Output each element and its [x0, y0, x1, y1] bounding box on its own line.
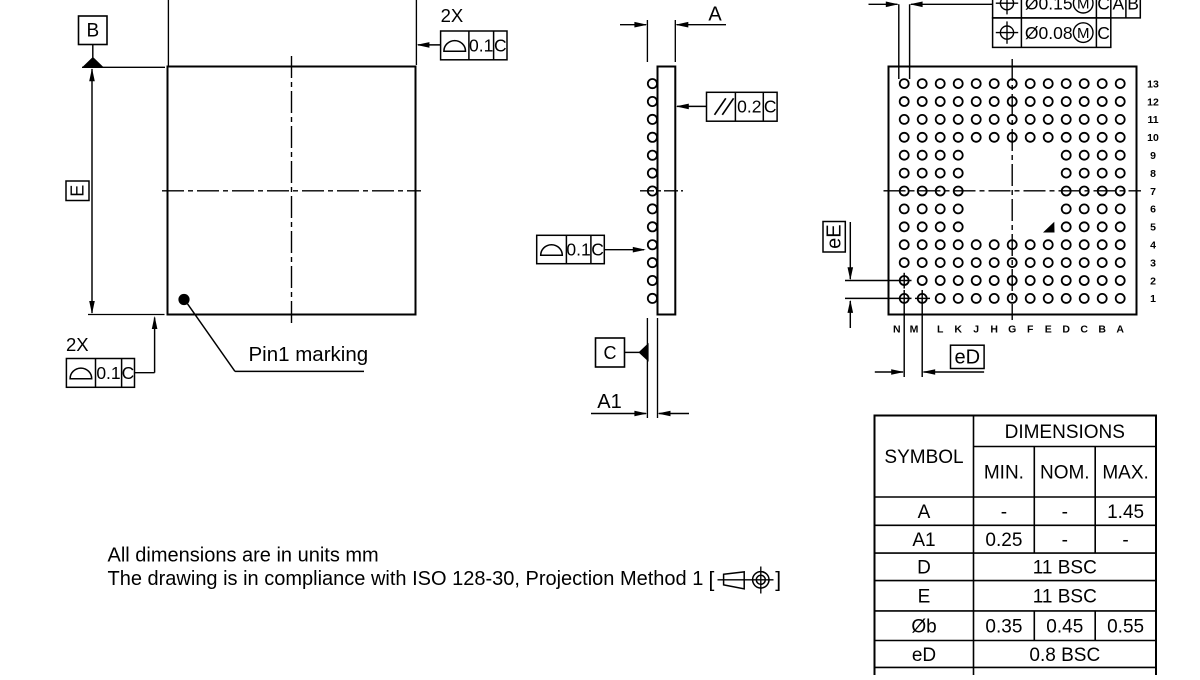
svg-text:B: B	[1098, 324, 1106, 336]
svg-text:0.55: 0.55	[1107, 617, 1144, 638]
svg-text:7: 7	[1150, 186, 1156, 198]
svg-text:M: M	[1077, 25, 1090, 42]
svg-text:0.45: 0.45	[1046, 617, 1083, 638]
svg-text:Pin1 marking: Pin1 marking	[249, 343, 369, 366]
svg-text:11 BSC: 11 BSC	[1033, 558, 1097, 579]
svg-text:0.25: 0.25	[985, 530, 1022, 551]
svg-text:4: 4	[1150, 240, 1156, 252]
svg-text:0.1: 0.1	[96, 363, 120, 383]
svg-text:12: 12	[1147, 96, 1159, 108]
svg-text:A: A	[1116, 324, 1124, 336]
svg-text:N: N	[893, 324, 901, 336]
svg-text:C: C	[1097, 23, 1110, 43]
svg-text:0.1: 0.1	[566, 240, 590, 260]
svg-text:A1: A1	[597, 391, 621, 413]
svg-text:Ø0.15: Ø0.15	[1025, 0, 1073, 14]
svg-text:6: 6	[1150, 204, 1156, 216]
svg-text:E: E	[68, 185, 88, 197]
svg-text:L: L	[937, 324, 944, 336]
svg-text:C: C	[1080, 324, 1088, 336]
svg-text:A: A	[1113, 0, 1125, 14]
svg-text:F: F	[1027, 324, 1034, 336]
svg-text:8: 8	[1150, 168, 1156, 180]
svg-text:NOM.: NOM.	[1040, 463, 1090, 484]
svg-text:DIMENSIONS: DIMENSIONS	[1005, 422, 1125, 443]
svg-text:0.2: 0.2	[737, 96, 761, 116]
svg-text:1.45: 1.45	[1107, 502, 1144, 523]
svg-text:C: C	[764, 96, 777, 116]
svg-text:3: 3	[1150, 257, 1156, 269]
svg-text:5: 5	[1150, 222, 1156, 234]
svg-text:H: H	[990, 324, 998, 336]
svg-text:E: E	[1045, 324, 1052, 336]
svg-text:C: C	[604, 343, 617, 363]
svg-text:2X: 2X	[441, 5, 464, 26]
svg-text:Ø0.08: Ø0.08	[1025, 23, 1073, 43]
svg-text:E: E	[918, 587, 931, 608]
svg-text:SYMBOL: SYMBOL	[884, 447, 963, 468]
svg-text:]: ]	[775, 569, 781, 592]
svg-text:Øb: Øb	[911, 617, 936, 638]
svg-text:G: G	[1008, 324, 1016, 336]
svg-text:0.8 BSC: 0.8 BSC	[1029, 645, 1100, 666]
svg-text:9: 9	[1150, 150, 1156, 162]
svg-text:2: 2	[1150, 275, 1156, 287]
svg-text:D: D	[917, 558, 931, 579]
svg-text:2X: 2X	[66, 334, 89, 355]
svg-text:[: [	[709, 569, 715, 592]
svg-text:11: 11	[1147, 114, 1158, 126]
svg-text:-: -	[1062, 502, 1068, 523]
svg-text:10: 10	[1147, 132, 1159, 144]
svg-text:0.1: 0.1	[469, 36, 493, 56]
svg-text:B: B	[86, 21, 99, 42]
svg-text:All dimensions are in units mm: All dimensions are in units mm	[108, 545, 379, 567]
svg-text:eE: eE	[824, 224, 846, 248]
svg-text:A1: A1	[912, 530, 935, 551]
svg-text:-: -	[1062, 530, 1068, 551]
svg-text:0.35: 0.35	[985, 617, 1022, 638]
svg-text:M: M	[1077, 0, 1090, 13]
svg-text:11 BSC: 11 BSC	[1033, 587, 1097, 608]
svg-text:M: M	[910, 324, 919, 336]
svg-text:-: -	[1122, 530, 1128, 551]
svg-text:1: 1	[1150, 293, 1156, 305]
svg-text:A: A	[918, 502, 931, 523]
svg-text:MIN.: MIN.	[984, 463, 1024, 484]
svg-text:13: 13	[1147, 78, 1159, 90]
svg-text:J: J	[973, 324, 979, 336]
svg-text:The drawing is in compliance w: The drawing is in compliance with ISO 12…	[108, 568, 704, 590]
svg-text:eD: eD	[912, 645, 936, 666]
svg-text:B: B	[1127, 0, 1139, 14]
svg-text:MAX.: MAX.	[1102, 463, 1148, 484]
svg-text:eD: eD	[955, 347, 981, 369]
svg-text:A: A	[708, 4, 722, 26]
svg-text:C: C	[591, 240, 604, 260]
svg-text:K: K	[954, 324, 962, 336]
svg-text:D: D	[1062, 324, 1070, 336]
svg-text:-: -	[1001, 502, 1007, 523]
svg-text:C: C	[1097, 0, 1110, 14]
svg-text:C: C	[494, 36, 507, 56]
svg-text:C: C	[122, 363, 135, 383]
